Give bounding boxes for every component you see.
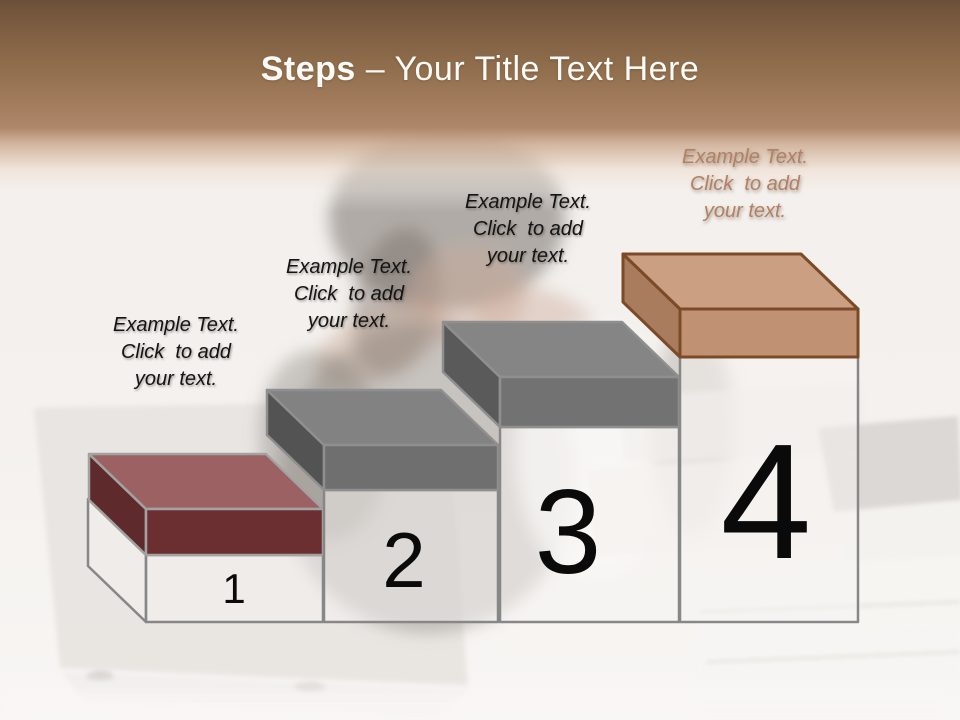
step-3-slab-front (500, 377, 679, 427)
slide: Steps – Your Title Text Here Example Tex… (0, 0, 960, 720)
step-4-number: 4 (720, 410, 811, 593)
steps-diagram: 1 2 3 (0, 0, 960, 720)
step-2-slab-front (324, 445, 498, 490)
step-1-slab-front (146, 509, 323, 555)
step-1-box: 1 (88, 454, 323, 622)
step-2-number: 2 (382, 516, 425, 604)
step-4-slab-front (680, 309, 858, 357)
step-3-number: 3 (535, 465, 602, 599)
step-1-number: 1 (222, 565, 245, 612)
